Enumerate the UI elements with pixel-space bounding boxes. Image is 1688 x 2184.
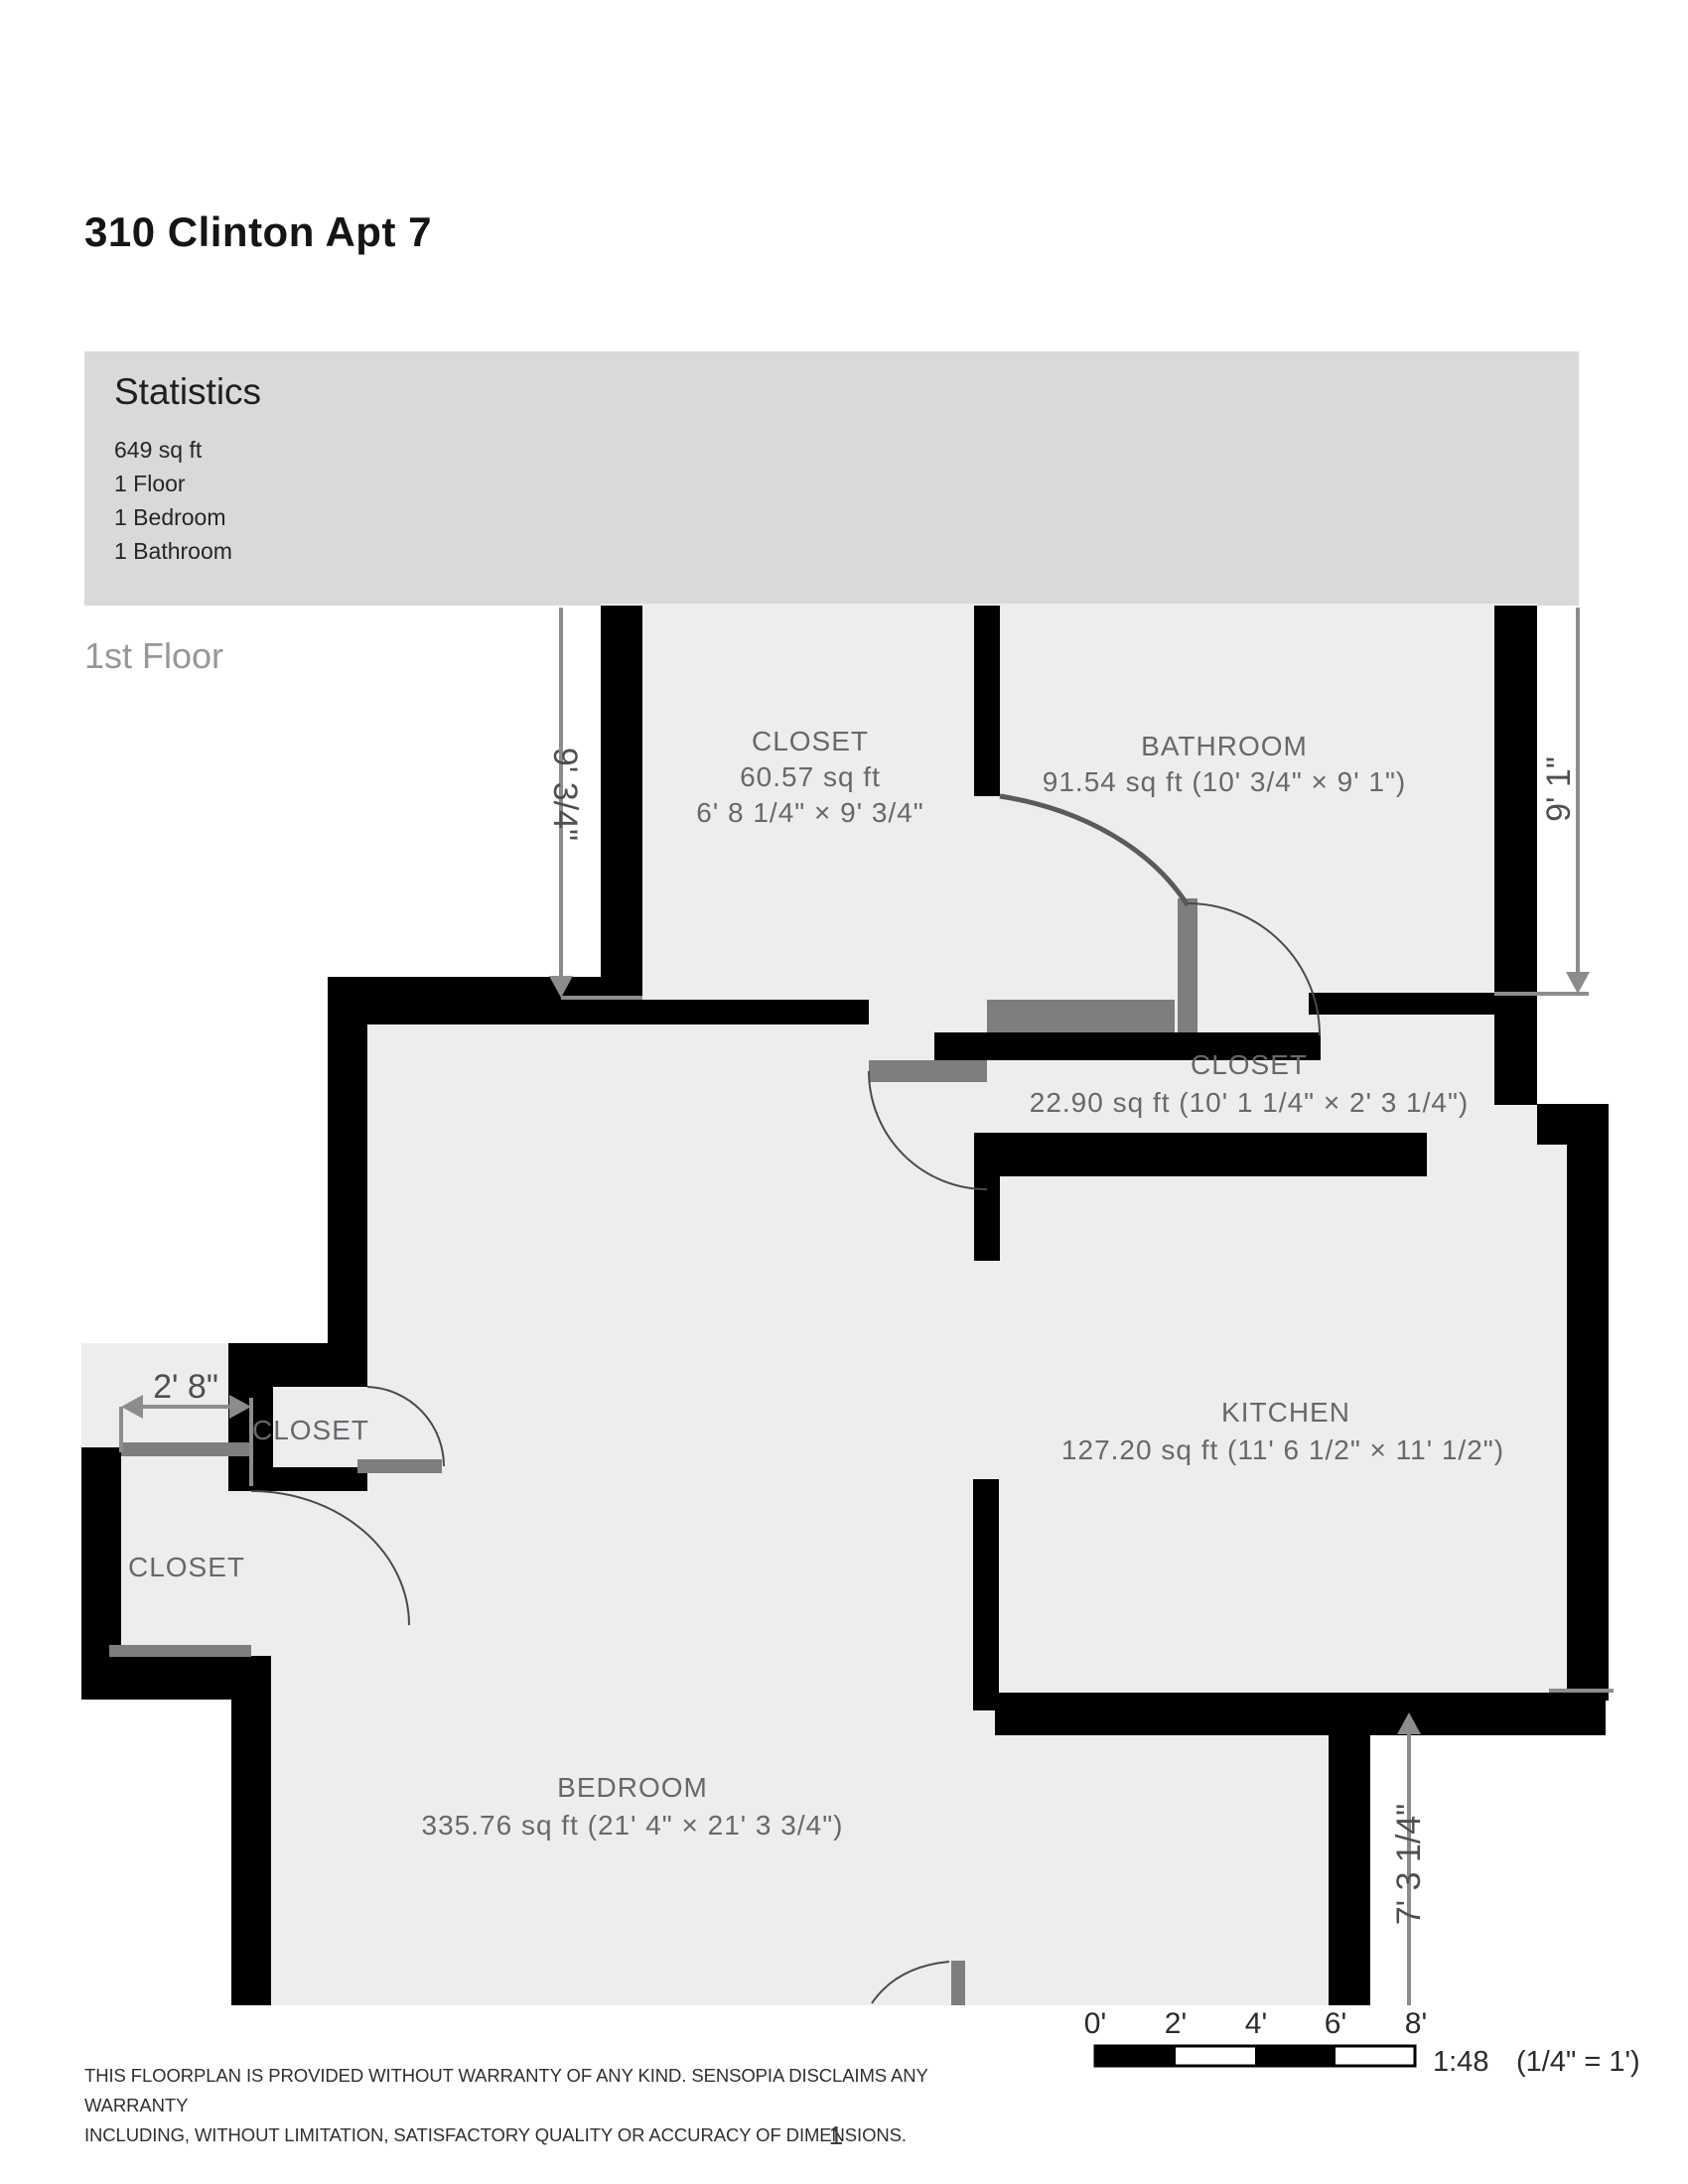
label-closet-hall-area: 22.90 sq ft (10' 1 1/4" × 2' 3 1/4") xyxy=(1030,1087,1470,1118)
wall-right-jog xyxy=(1537,1104,1609,1145)
wall-bathroom-right xyxy=(1494,606,1537,1105)
wall-under-closet xyxy=(642,1000,869,1024)
scale-bar-seg-1 xyxy=(1095,2046,1176,2066)
label-bathroom-area: 91.54 sq ft (10' 3/4" × 9' 1") xyxy=(1043,766,1406,797)
wall-bedroom-top xyxy=(328,977,642,1024)
scale-bar-seg-2 xyxy=(1255,2046,1336,2066)
page-number: 1 xyxy=(814,2120,858,2151)
wall-outer-left xyxy=(81,1447,121,1675)
label-bedroom: BEDROOM xyxy=(557,1772,708,1803)
scale-unit-label: (1/4" = 1') xyxy=(1516,2046,1640,2078)
lowercloset-top-door xyxy=(121,1442,251,1456)
scale-tick-2: 2' xyxy=(1165,2007,1187,2040)
label-kitchen-area: 127.20 sq ft (11' 6 1/2" × 11' 1/2") xyxy=(1061,1434,1504,1465)
scale-tick-6: 6' xyxy=(1325,2007,1346,2040)
wall-outer-left-lower xyxy=(231,1675,271,2005)
floor-mid-band xyxy=(328,1133,1609,1693)
label-closet-top-area: 60.57 sq ft xyxy=(740,761,881,792)
wall-smallcloset-top xyxy=(228,1343,367,1387)
wall-hallcloset-bottom xyxy=(974,1133,1427,1176)
lowercloset-bottom-door xyxy=(109,1645,251,1657)
label-closet-top: CLOSET xyxy=(752,726,869,756)
hallcloset-door-leaf xyxy=(987,1000,1175,1032)
label-closet-top-dims: 6' 8 1/4" × 9' 3/4" xyxy=(696,797,923,828)
label-closet-small: CLOSET xyxy=(252,1415,369,1445)
scale-tick-4: 4' xyxy=(1245,2007,1267,2040)
bedroom-door-leaf xyxy=(869,1060,987,1082)
wall-kitchen-bottom xyxy=(995,1693,1606,1735)
disclaimer-line-1: THIS FLOORPLAN IS PROVIDED WITHOUT WARRA… xyxy=(84,2061,938,2120)
wall-kitchen-right xyxy=(1567,1145,1609,1701)
dim-text-closet-height: 9' 3/4" xyxy=(546,748,584,841)
dim-text-closet-width: 2' 8" xyxy=(153,1368,218,1406)
floorplan-drawing: 9' 3/4" 9' 1" 2' 8" 7' 3 1/4" CLOSET 60.… xyxy=(0,0,1688,2184)
bathroom-door-leaf xyxy=(1178,898,1197,1032)
wall-bedroom-left xyxy=(328,1024,367,1343)
label-bedroom-area: 335.76 sq ft (21' 4" × 21' 3 3/4") xyxy=(422,1810,844,1841)
smallcloset-door-leaf xyxy=(357,1459,442,1473)
dim-text-bedroom-right: 7' 3 1/4" xyxy=(1390,1804,1428,1926)
label-closet-hall: CLOSET xyxy=(1191,1049,1308,1080)
dim-arrow-bathroom-height xyxy=(1566,972,1590,994)
floor-bedroom-bottom xyxy=(271,1693,1370,2005)
label-kitchen: KITCHEN xyxy=(1221,1397,1350,1428)
label-bathroom: BATHROOM xyxy=(1141,731,1308,761)
label-closet-lower: CLOSET xyxy=(128,1552,245,1582)
wall-closet-bath-divider xyxy=(974,606,1000,796)
wall-below-kitchen xyxy=(1329,1735,1370,2005)
disclaimer: THIS FLOORPLAN IS PROVIDED WITHOUT WARRA… xyxy=(84,2061,938,2150)
wall-smallcloset-bottom xyxy=(273,1467,367,1491)
bedroom-entry-door-leaf xyxy=(951,1961,965,2005)
scale-bar: 0' 2' 4' 6' 8' 1:48 (1/4" = 1') xyxy=(1084,2007,1640,2078)
scale-tick-8: 8' xyxy=(1405,2007,1427,2040)
scale-ratio-label: 1:48 xyxy=(1433,2046,1488,2078)
dim-text-bathroom-height: 9' 1" xyxy=(1540,756,1578,822)
wall-bathroom-bottom xyxy=(1309,993,1494,1015)
disclaimer-line-2: INCLUDING, WITHOUT LIMITATION, SATISFACT… xyxy=(84,2120,938,2150)
wall-closet-left xyxy=(601,606,642,1024)
floorplan-page: 310 Clinton Apt 7 Statistics 649 sq ft 1… xyxy=(0,0,1688,2184)
scale-tick-0: 0' xyxy=(1084,2007,1106,2040)
wall-kitchen-left-lower xyxy=(973,1479,999,1710)
